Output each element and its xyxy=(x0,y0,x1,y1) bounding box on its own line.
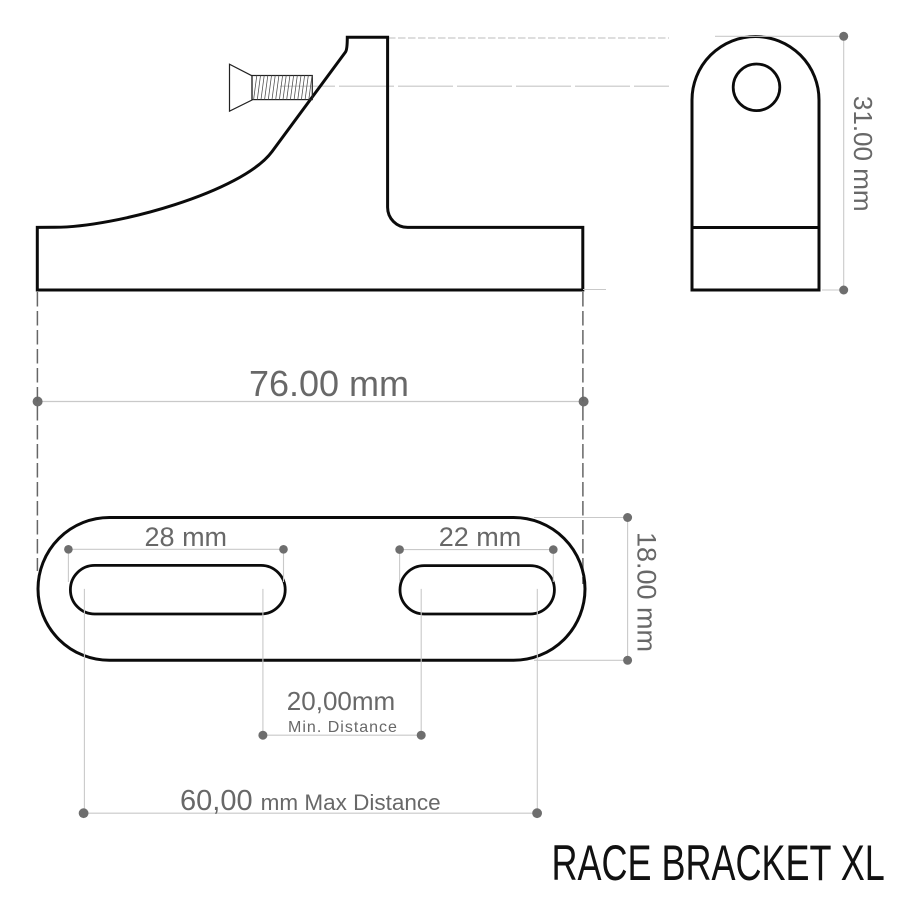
svg-text:RACE BRACKET XL: RACE BRACKET XL xyxy=(552,836,885,891)
svg-text:28 mm: 28 mm xyxy=(145,522,228,552)
svg-text:18.00 mm: 18.00 mm xyxy=(631,532,661,652)
svg-text:60,00 mm Max Distance: 60,00 mm Max Distance xyxy=(180,785,441,817)
svg-text:20,00mm: 20,00mm xyxy=(287,686,395,716)
svg-text:22 mm: 22 mm xyxy=(439,522,522,552)
svg-text:76.00 mm: 76.00 mm xyxy=(249,363,409,404)
svg-text:31.00 mm: 31.00 mm xyxy=(848,96,878,212)
svg-text:Min. Distance: Min. Distance xyxy=(288,719,398,736)
